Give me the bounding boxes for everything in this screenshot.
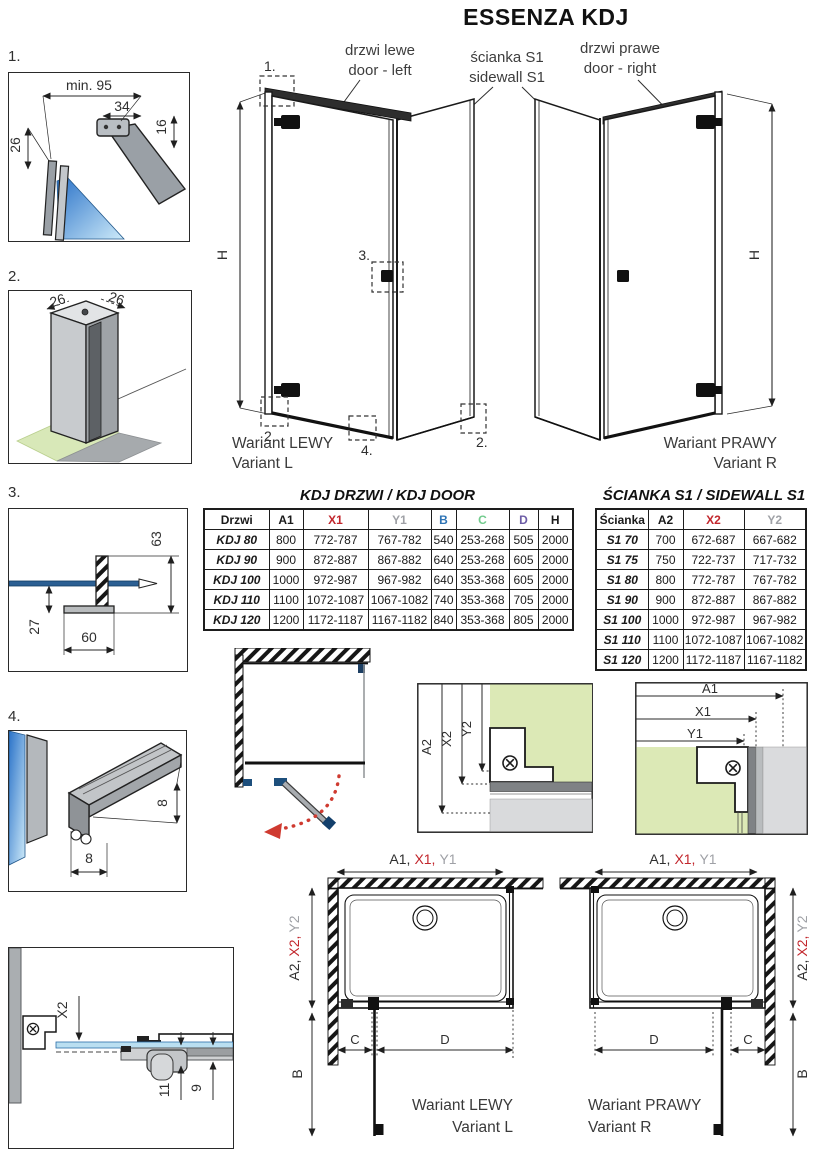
table-cell: 767-782: [368, 530, 431, 550]
table-cell: 1067-1082: [368, 590, 431, 610]
table-cell: 772-787: [303, 530, 368, 550]
table-cell: 900: [269, 550, 303, 570]
door-table: DrzwiA1X1Y1BCDHKDJ 80800772-787767-78254…: [203, 508, 574, 631]
table-cell: 900: [648, 590, 683, 610]
dim-34: 34: [114, 98, 130, 114]
detail-1-wall-bracket: min. 95 34 16 26: [8, 72, 190, 242]
plan-right-top-dims: A1,X1,Y1: [649, 852, 716, 867]
label-door-right-pl: drzwi prawe: [580, 40, 660, 57]
dim-x1: X1: [695, 704, 711, 719]
variant-left-pl: Wariant LEWY: [232, 435, 333, 452]
table-cell: 867-882: [368, 550, 431, 570]
dim-y1: Y1: [687, 726, 703, 741]
table-row: S1 1001000972-987967-982: [596, 610, 806, 630]
table-cell: 872-887: [303, 550, 368, 570]
plan-variant-right: A1,X1,Y1 A2,X2,Y2 B D C Wariant PRAWY Va…: [555, 852, 820, 1155]
row-header: KDJ 80: [204, 530, 269, 550]
table-cell: 967-982: [368, 570, 431, 590]
table-row: KDJ 1001000972-987967-982640353-36860520…: [204, 570, 573, 590]
plan-left-side-dims: A2,X2,Y2: [286, 915, 302, 980]
label-sidewall-en: sidewall S1: [469, 69, 545, 86]
header-row: ŚciankaA2X2Y2: [596, 509, 806, 530]
table-cell: 800: [269, 530, 303, 550]
dim-y2: Y2: [286, 915, 302, 932]
table-cell: 2000: [538, 550, 573, 570]
row-header: S1 70: [596, 530, 648, 550]
header-row: DrzwiA1X1Y1BCDH: [204, 509, 573, 530]
plan-variant-left: A1,X1,Y1 A2,X2,Y2 B C D Wariant LEWY Var…: [285, 852, 550, 1155]
table-cell: 740: [431, 590, 456, 610]
table-cell: 705: [509, 590, 538, 610]
column-header: D: [509, 509, 538, 530]
table-cell: 353-368: [456, 570, 509, 590]
variant-left-pl: Wariant LEWY: [412, 1097, 513, 1114]
dim-y2: Y2: [794, 915, 810, 932]
dim-c: C: [350, 1032, 359, 1047]
column-header: Y2: [744, 509, 806, 530]
dim-h-left: H: [214, 250, 230, 260]
callout-3: 3.: [8, 484, 21, 501]
table-row: S1 90900872-887867-882: [596, 590, 806, 610]
dim-x2: X2,: [794, 936, 810, 957]
table-row: S1 11011001072-10871067-1082: [596, 630, 806, 650]
row-header: KDJ 110: [204, 590, 269, 610]
callout-4: 4.: [8, 708, 21, 725]
table-cell: 1072-1087: [303, 590, 368, 610]
dim-9: 9: [188, 1084, 204, 1092]
dim-y1: Y1: [699, 852, 716, 867]
table-cell: 605: [509, 570, 538, 590]
dim-x2: X2: [439, 731, 454, 747]
detail-3-glass-holder: 63 27 60: [8, 508, 188, 672]
table-cell: 640: [431, 550, 456, 570]
variant-right-en: Variant R: [714, 455, 777, 472]
table-cell: 1000: [269, 570, 303, 590]
column-header: Ścianka: [596, 509, 648, 530]
callout-box-4: 4.: [361, 442, 373, 458]
iso-variant-right: H Wariant PRAWY Variant R: [535, 91, 777, 472]
table-row: KDJ 11011001072-10871067-1082740353-3687…: [204, 590, 573, 610]
isometric-views: drzwi lewe door - left ścianka S1 sidewa…: [210, 40, 824, 480]
dim-60: 60: [81, 629, 97, 645]
dim-63: 63: [148, 531, 164, 547]
detail-1-drawing: min. 95 34 16 26: [9, 73, 189, 241]
table-cell: 1167-1182: [368, 610, 431, 631]
table-cell: 972-987: [683, 610, 744, 630]
callout-box-1: 1.: [264, 58, 276, 74]
row-header: S1 100: [596, 610, 648, 630]
column-header: Y1: [368, 509, 431, 530]
row-header: S1 80: [596, 570, 648, 590]
door-dimension-detail: A1 X1 Y1: [635, 682, 808, 835]
detail-2-drawing: 26 26: [9, 291, 191, 463]
detail-5-hinge-section: X2 11 9: [8, 947, 234, 1149]
table-cell: 767-782: [744, 570, 806, 590]
column-header: B: [431, 509, 456, 530]
callout-1: 1.: [8, 48, 21, 65]
row-header: KDJ 120: [204, 610, 269, 631]
table-cell: 1167-1182: [744, 650, 806, 671]
detail-4-drawing: 8 8: [9, 731, 186, 891]
table-cell: 1100: [648, 630, 683, 650]
table-cell: 1072-1087: [683, 630, 744, 650]
dim-x2: X2: [54, 1001, 70, 1018]
dim-a2: A2: [419, 739, 434, 755]
detail-5-drawing: X2 11 9: [9, 948, 233, 1148]
table-row: KDJ 80800772-787767-782540253-2685052000: [204, 530, 573, 550]
callout-box-2-right: 2.: [476, 434, 488, 450]
dim-a2: A2,: [286, 960, 302, 981]
table-cell: 1200: [269, 610, 303, 631]
row-header: KDJ 100: [204, 570, 269, 590]
column-header: A1: [269, 509, 303, 530]
table-row: KDJ 12012001172-11871167-1182840353-3688…: [204, 610, 573, 631]
table-cell: 800: [648, 570, 683, 590]
dim-b: B: [794, 1069, 810, 1078]
variant-right-pl: Wariant PRAWY: [588, 1097, 701, 1114]
table-row: S1 70700672-687667-682: [596, 530, 806, 550]
column-header: H: [538, 509, 573, 530]
variant-right-en: Variant R: [588, 1119, 651, 1136]
plan-left-top-dims: A1,X1,Y1: [389, 852, 456, 867]
table-cell: 253-268: [456, 550, 509, 570]
table-cell: 872-887: [683, 590, 744, 610]
dim-a1: A1,: [649, 852, 670, 867]
table-cell: 253-268: [456, 530, 509, 550]
table-cell: 1067-1082: [744, 630, 806, 650]
sidewall-table-title: ŚCIANKA S1 / SIDEWALL S1: [588, 487, 820, 504]
variant-right-pl: Wariant PRAWY: [664, 435, 777, 452]
row-header: S1 90: [596, 590, 648, 610]
table-row: KDJ 90900872-887867-882640253-2686052000: [204, 550, 573, 570]
table-cell: 640: [431, 570, 456, 590]
label-door-left-pl: drzwi lewe: [345, 42, 415, 59]
table-cell: 772-787: [683, 570, 744, 590]
table-row: S1 12012001172-11871167-1182: [596, 650, 806, 671]
dim-x2: X2,: [286, 936, 302, 957]
column-header: Drzwi: [204, 509, 269, 530]
door-swing-top-view: [218, 648, 410, 845]
dim-d: D: [440, 1032, 449, 1047]
row-header: S1 110: [596, 630, 648, 650]
label-door-right-en: door - right: [584, 60, 657, 77]
table-cell: 505: [509, 530, 538, 550]
table-cell: 700: [648, 530, 683, 550]
dim-c: C: [743, 1032, 752, 1047]
iso-variant-left: H 1. 2. 3. 4. 2. Wariant LEWY Variant L: [214, 58, 488, 472]
dim-16: 16: [153, 119, 169, 135]
detail-3-drawing: 63 27 60: [9, 509, 187, 671]
variant-left-en: Variant L: [232, 455, 293, 472]
page-title: ESSENZA KDJ: [246, 4, 824, 31]
variant-left-en: Variant L: [452, 1119, 513, 1136]
table-cell: 1200: [648, 650, 683, 671]
table-cell: 353-368: [456, 590, 509, 610]
column-header: C: [456, 509, 509, 530]
dim-h-right: H: [746, 250, 762, 260]
door-table-title: KDJ DRZWI / KDJ DOOR: [203, 487, 572, 504]
table-cell: 2000: [538, 610, 573, 631]
table-cell: 717-732: [744, 550, 806, 570]
sidewall-table: ŚciankaA2X2Y2S1 70700672-687667-682S1 75…: [595, 508, 807, 671]
table-cell: 1172-1187: [303, 610, 368, 631]
callout-2: 2.: [8, 268, 21, 285]
dim-y2: Y2: [459, 721, 474, 737]
table-cell: 840: [431, 610, 456, 631]
detail-4-threshold-seal: 8 8: [8, 730, 187, 892]
dim-y1: Y1: [439, 852, 456, 867]
table-cell: 605: [509, 550, 538, 570]
table-cell: 967-982: [744, 610, 806, 630]
column-header: X1: [303, 509, 368, 530]
table-row: S1 80800772-787767-782: [596, 570, 806, 590]
dim-27: 27: [26, 619, 42, 635]
table-cell: 722-737: [683, 550, 744, 570]
spec-sheet: ESSENZA KDJ 1. 2. 3. 4. min. 95 34 16 26: [0, 0, 824, 1158]
table-cell: 2000: [538, 590, 573, 610]
sidewall-dimension-detail: A2 X2 Y2: [417, 683, 593, 833]
dim-a1: A1,: [389, 852, 410, 867]
label-sidewall-pl: ścianka S1: [470, 49, 543, 66]
table-row: S1 75750722-737717-732: [596, 550, 806, 570]
dim-b: B: [289, 1069, 305, 1078]
dim-x1: X1,: [414, 852, 435, 867]
detail-2-corner-profile: 26 26: [8, 290, 192, 464]
dim-26-right: 26: [107, 291, 127, 308]
table-cell: 667-682: [744, 530, 806, 550]
callout-box-3: 3.: [358, 247, 370, 263]
table-cell: 867-882: [744, 590, 806, 610]
dim-d: D: [649, 1032, 658, 1047]
row-header: S1 75: [596, 550, 648, 570]
column-header: X2: [683, 509, 744, 530]
dim-11: 11: [156, 1083, 172, 1098]
dim-8-bottom: 8: [85, 850, 93, 866]
dim-a2: A2,: [794, 960, 810, 981]
plan-right-side-dims: A2,X2,Y2: [794, 915, 810, 980]
table-cell: 540: [431, 530, 456, 550]
dim-min95: min. 95: [66, 77, 112, 93]
table-cell: 750: [648, 550, 683, 570]
table-cell: 2000: [538, 530, 573, 550]
row-header: KDJ 90: [204, 550, 269, 570]
dim-x1: X1,: [674, 852, 695, 867]
row-header: S1 120: [596, 650, 648, 671]
dim-26-left: 26: [48, 291, 68, 310]
dim-8-side: 8: [154, 799, 170, 807]
dim-26: 26: [9, 137, 23, 153]
dim-a1: A1: [702, 682, 718, 696]
table-cell: 1000: [648, 610, 683, 630]
table-cell: 353-368: [456, 610, 509, 631]
column-header: A2: [648, 509, 683, 530]
table-cell: 972-987: [303, 570, 368, 590]
table-cell: 672-687: [683, 530, 744, 550]
table-cell: 2000: [538, 570, 573, 590]
table-cell: 1172-1187: [683, 650, 744, 671]
table-cell: 1100: [269, 590, 303, 610]
table-cell: 805: [509, 610, 538, 631]
label-door-left-en: door - left: [348, 62, 412, 79]
